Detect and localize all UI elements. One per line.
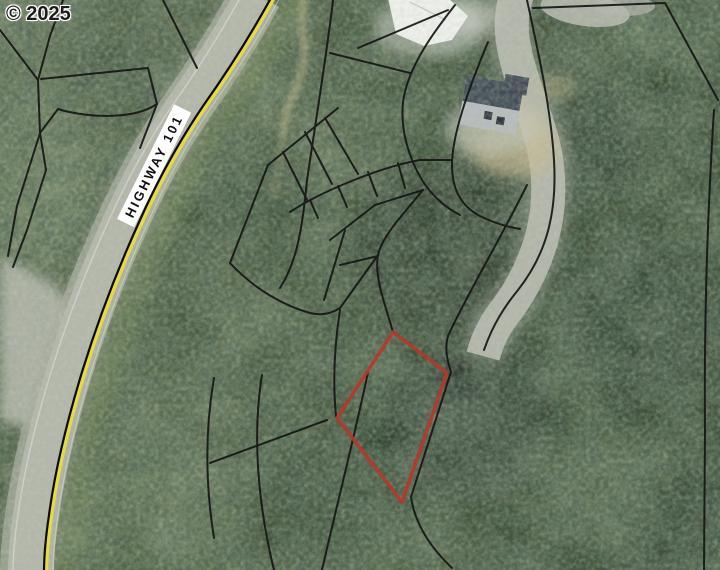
aerial-parcel-map[interactable]: HIGHWAY 101 © 2025 bbox=[0, 0, 720, 570]
map-canvas bbox=[0, 0, 720, 570]
foliage-speckle bbox=[0, 0, 720, 570]
copyright-watermark: © 2025 bbox=[6, 3, 71, 26]
